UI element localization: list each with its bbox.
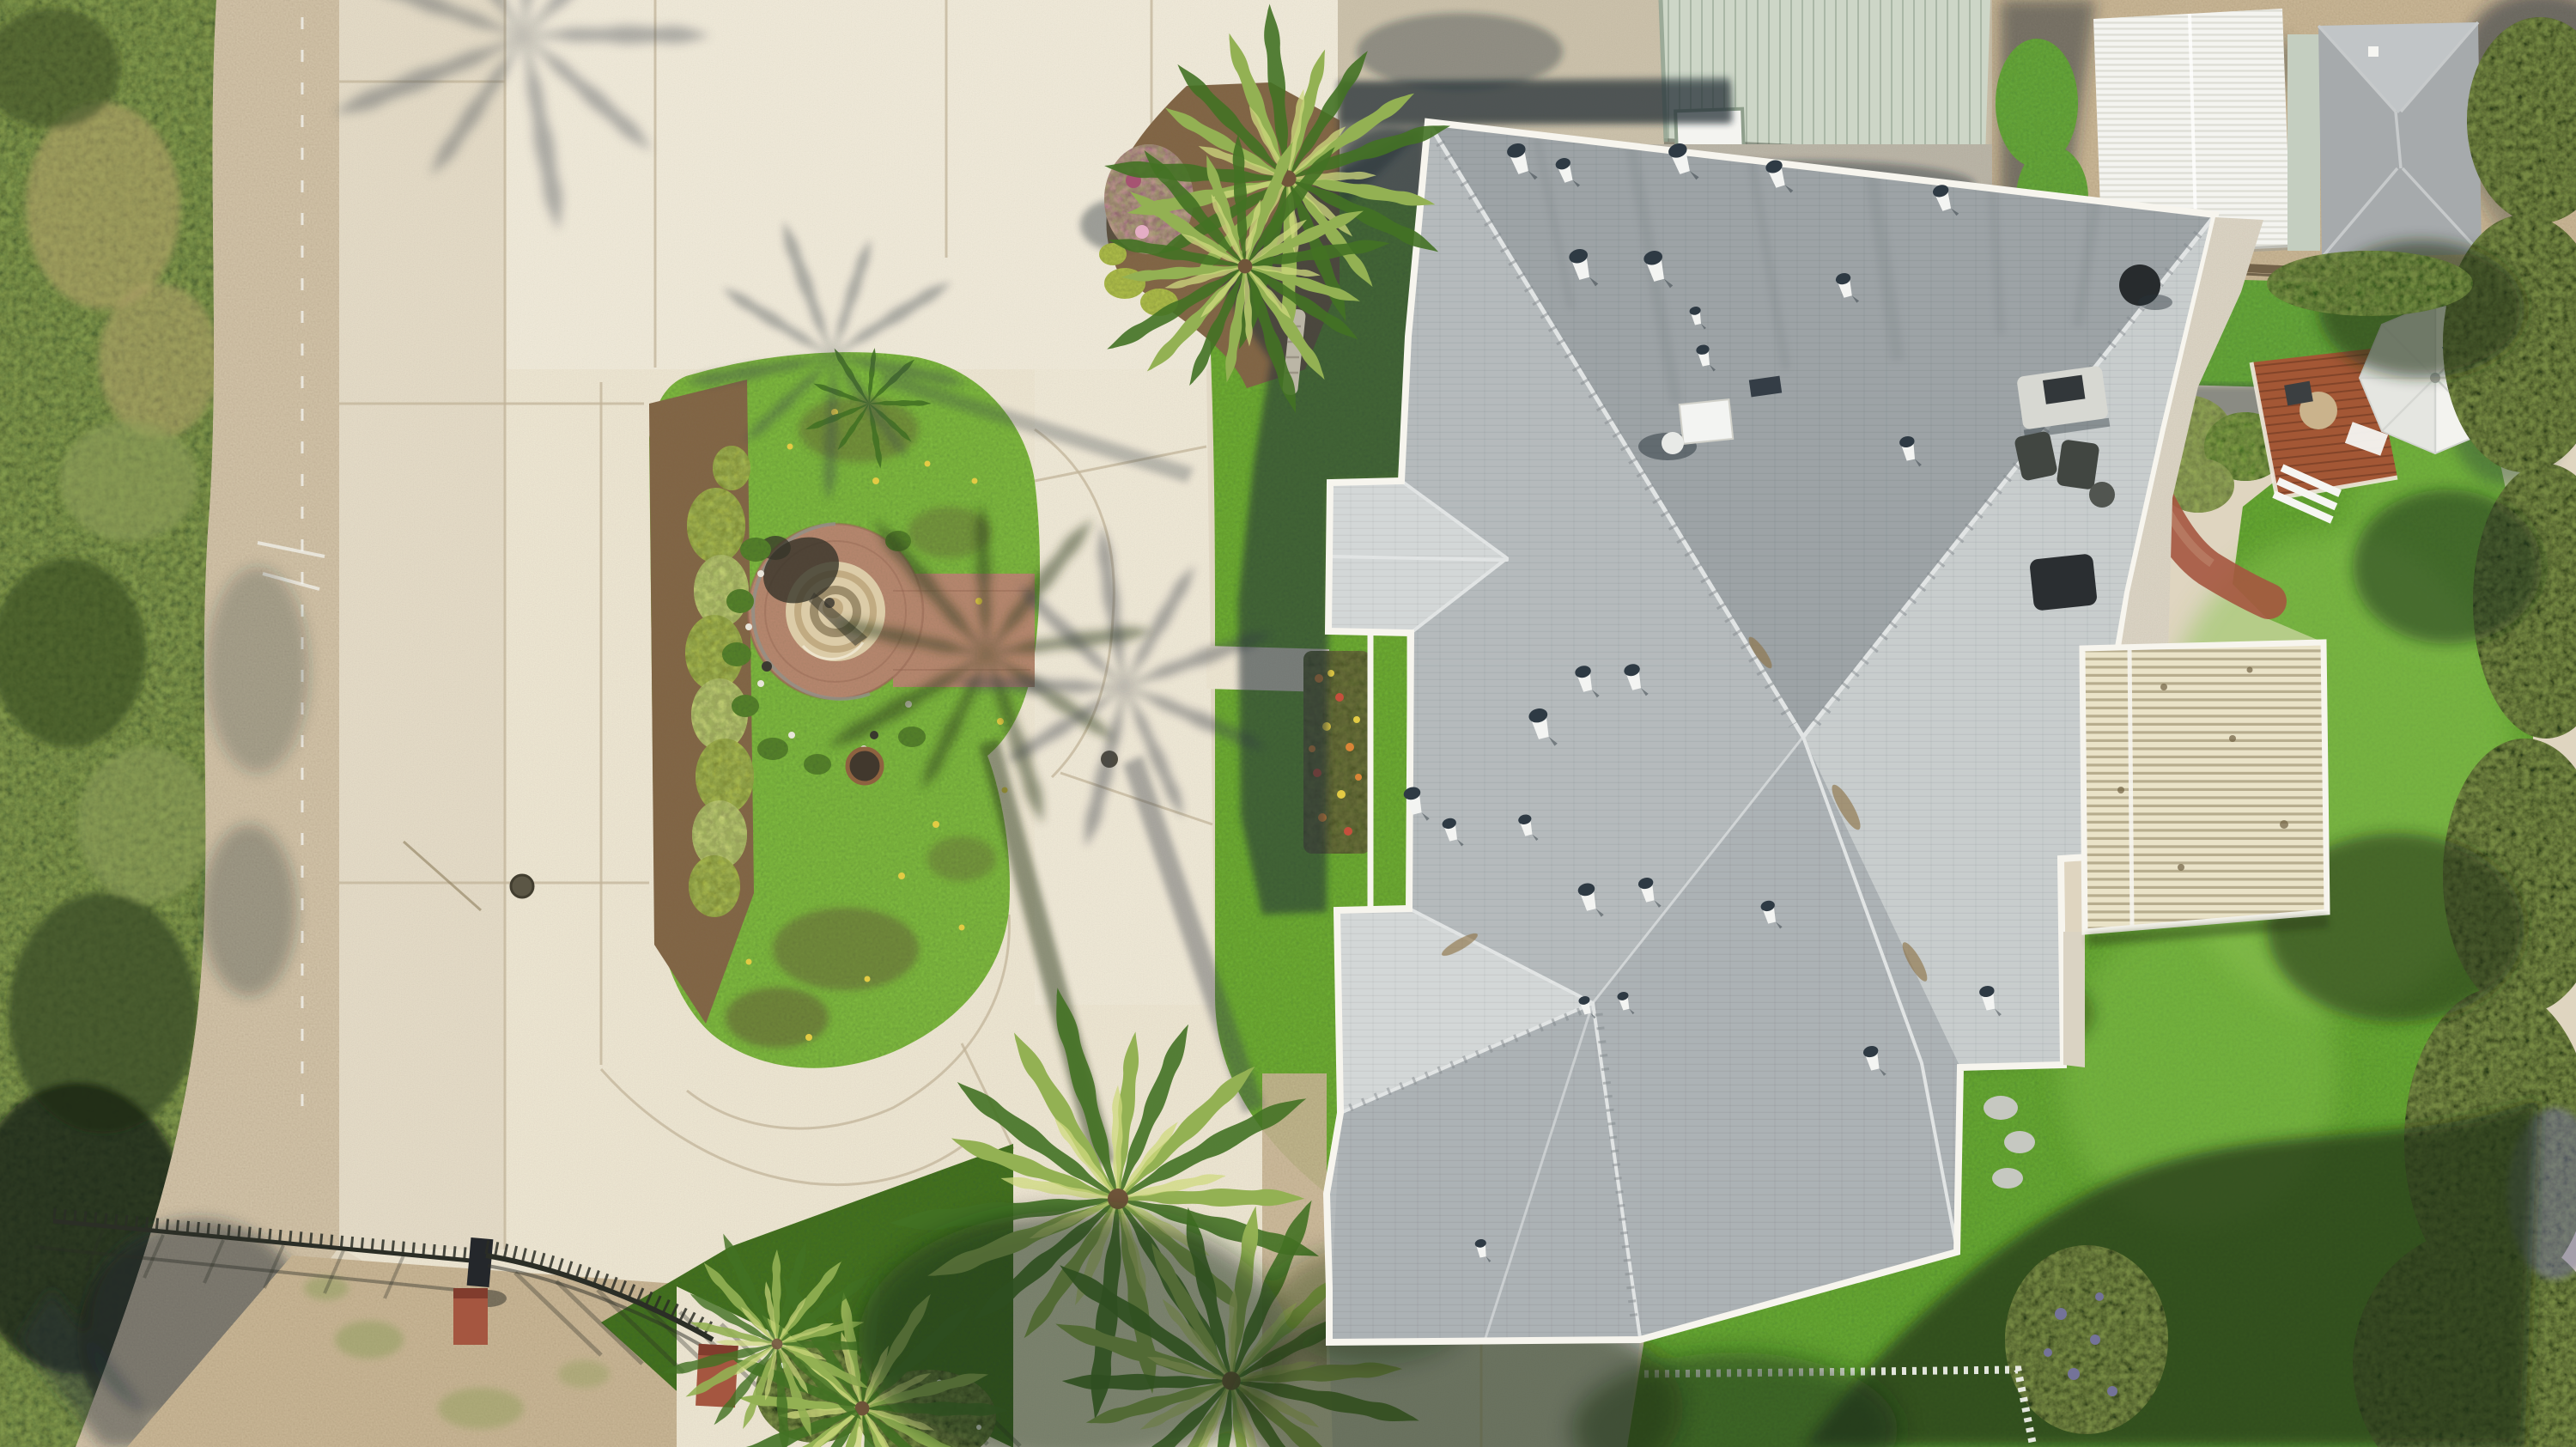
aerial-photo bbox=[0, 0, 2576, 1447]
light-wash bbox=[0, 0, 2576, 1447]
